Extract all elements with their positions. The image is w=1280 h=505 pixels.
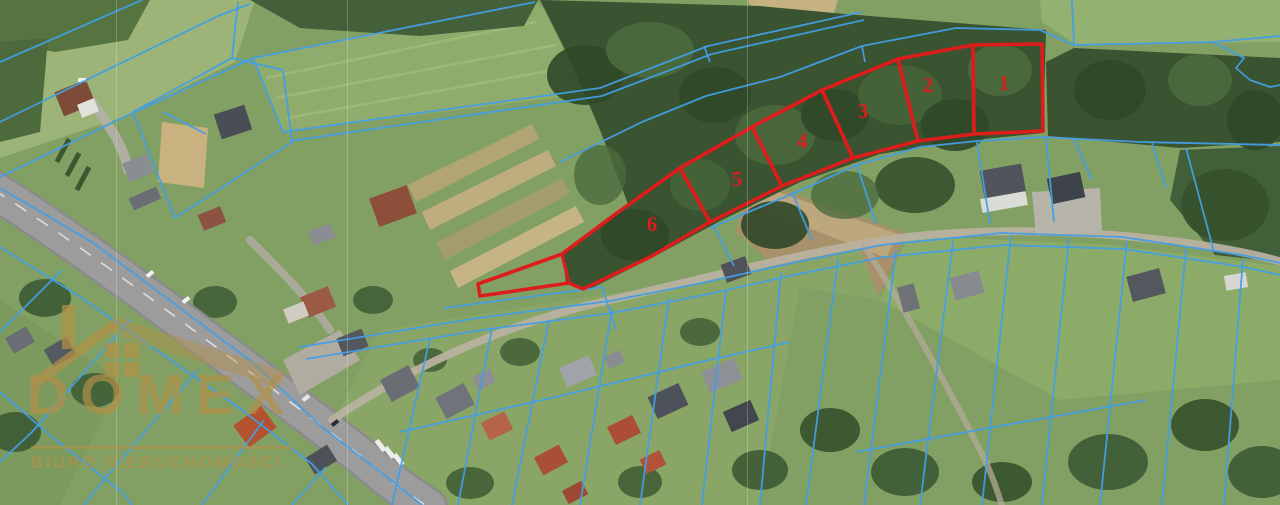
tree-cluster bbox=[800, 408, 860, 452]
tree-cluster bbox=[500, 338, 540, 366]
tree-cluster bbox=[680, 318, 720, 346]
cadastral-boundary-line bbox=[202, 420, 264, 505]
parcel-5-number: 5 bbox=[732, 167, 743, 191]
house bbox=[129, 186, 162, 210]
parcel-6-number: 6 bbox=[647, 212, 658, 236]
tree-cluster bbox=[1074, 60, 1146, 120]
tree-cluster bbox=[875, 157, 955, 213]
tree-cluster bbox=[19, 279, 71, 317]
tree-cluster bbox=[871, 448, 939, 496]
tree-cluster bbox=[446, 467, 494, 499]
garden-row bbox=[75, 166, 92, 191]
tree-cluster bbox=[606, 22, 694, 78]
tree-cluster bbox=[679, 67, 751, 123]
house bbox=[369, 185, 417, 227]
tree-cluster bbox=[732, 450, 788, 490]
parcel-1-number: 1 bbox=[999, 71, 1010, 95]
tree-cluster bbox=[1168, 54, 1232, 106]
parcel-3-number: 3 bbox=[858, 99, 869, 123]
garden-row bbox=[65, 152, 82, 177]
tree-cluster bbox=[574, 145, 626, 205]
aerial-map: 123456 DOMEX BIURO NIERUCHOMOŚCI bbox=[0, 0, 1280, 505]
tree-cluster bbox=[1068, 434, 1148, 490]
tree-cluster bbox=[811, 171, 879, 219]
tree-cluster bbox=[353, 286, 393, 314]
parcel-4-number: 4 bbox=[797, 129, 808, 153]
garden-row bbox=[55, 138, 72, 163]
house bbox=[198, 206, 227, 231]
parcel-2-number: 2 bbox=[923, 73, 934, 97]
meadow bbox=[1040, 0, 1280, 44]
tree-cluster bbox=[1228, 446, 1280, 498]
tree-cluster bbox=[618, 466, 662, 498]
cadastral-boundary-line bbox=[1152, 143, 1166, 188]
cadastral-boundary-line bbox=[714, 226, 734, 266]
cadastral-boundary-line bbox=[292, 467, 326, 505]
aerial-map-canvas: 123456 bbox=[0, 0, 1280, 505]
house bbox=[308, 223, 336, 245]
house bbox=[214, 105, 252, 140]
cadastral-boundary-line bbox=[806, 259, 838, 505]
